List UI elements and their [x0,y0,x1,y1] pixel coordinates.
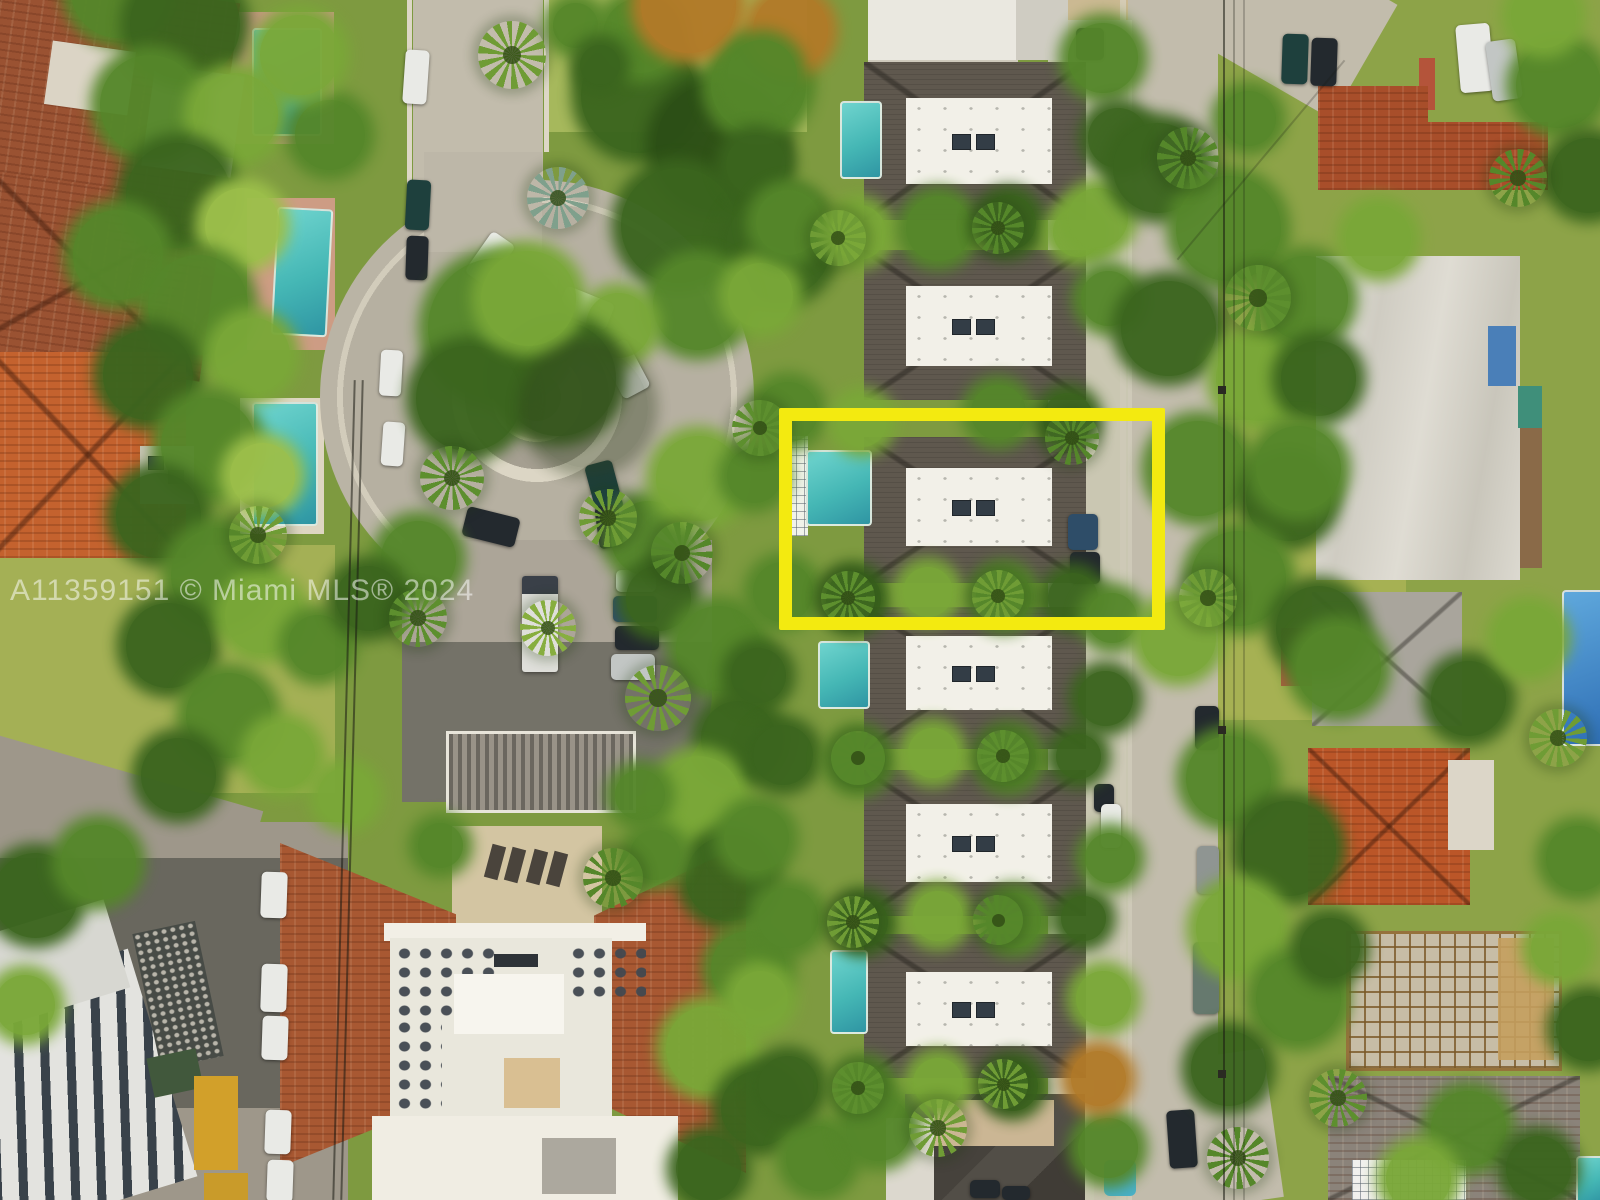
tree-canopy [1281,341,1356,416]
palm-center [1330,1090,1345,1105]
ac-unit [952,666,971,682]
palm-tree [583,848,643,908]
blue-tarp [1488,326,1516,386]
truck-cab [522,576,558,594]
palm-tree [909,1099,967,1157]
tree-canopy [753,725,813,785]
ac-cluster [568,944,646,1002]
tree-canopy [1068,188,1128,248]
car [1310,38,1338,87]
car [1166,1109,1198,1169]
car [1002,1186,1030,1200]
tree-canopy [528,348,648,468]
tree-canopy [288,615,348,675]
tree-canopy [1191,1031,1266,1106]
ac-unit [976,134,995,150]
palm-center [997,1078,1010,1091]
tree-canopy [906,196,971,261]
car [405,236,429,281]
palm-tree [478,21,546,89]
palm-tree [973,895,1023,945]
tree-canopy [908,728,958,778]
tree-canopy [295,100,365,170]
palm-center [674,545,690,561]
palm-center [1180,150,1196,166]
tree-canopy [1346,206,1411,271]
swimming-pool [830,950,868,1034]
swimming-pool [818,641,870,709]
tree-canopy [1121,281,1216,376]
tree-canopy [1085,833,1135,883]
palm-tree [579,489,637,547]
tree-canopy [758,1056,818,1116]
orange-roof-house [1308,748,1470,905]
tree-canopy [727,40,797,110]
tree-canopy [1431,1091,1506,1166]
tree-canopy [1221,91,1276,146]
tree-canopy [786,1126,851,1191]
car [264,1110,292,1155]
ac-unit [976,1002,995,1018]
tree-canopy [141,738,216,813]
wood-patch [504,1058,560,1108]
power-line [1223,0,1225,1200]
tree-canopy [230,443,295,508]
palm-tree [1529,709,1587,767]
tree-canopy [1186,736,1271,821]
palm-tree [527,167,589,229]
palm-tree [625,665,691,731]
palm-tree [810,210,866,266]
condo-lower-roof [372,1116,678,1200]
ac-unit [952,319,971,335]
tree-canopy [1068,23,1138,93]
tree-canopy [205,188,280,263]
tree-canopy [193,73,278,158]
tree-canopy [1496,606,1561,671]
tree-canopy [1056,734,1101,779]
palm-tree [978,1059,1028,1109]
car [261,1016,289,1061]
palm-center [250,527,265,542]
palm-center [996,749,1010,763]
car [1197,846,1219,894]
ac-unit [976,319,995,335]
palm-tree [827,896,879,948]
tree-canopy [1071,1051,1126,1106]
tree-canopy [1300,918,1360,978]
palm-center [649,689,666,706]
ac-unit [976,666,995,682]
tree-canopy [1531,921,1586,976]
tree-canopy [481,251,576,346]
palm-center [605,870,621,886]
palm-tree [520,600,576,656]
tree-canopy [580,45,620,85]
palm-tree [1157,127,1219,189]
tree-canopy [553,3,598,48]
north-road-sidewalk-east [544,0,549,152]
palm-center [1550,730,1565,745]
palm-tree [972,202,1024,254]
palm-center [503,46,521,64]
aerial-photo: A11359151 © Miami MLS® 2024 [0,0,1600,1200]
tree-canopy [100,55,200,155]
yellow-truck-cab [204,1173,248,1200]
tree-canopy [1516,43,1600,128]
tree-canopy [1296,626,1381,711]
green-tarp [1518,386,1542,428]
palm-center [410,610,425,625]
palm-center [991,221,1005,235]
tree-canopy [215,318,290,393]
watermark: A11359151 © Miami MLS® 2024 [10,574,474,608]
solar-panel [494,954,538,967]
car [402,49,430,105]
tree-canopy [1241,801,1336,896]
palm-tree [1179,569,1237,627]
utility-pole [1218,1070,1226,1078]
palm-center [1510,170,1525,185]
tree-canopy [1078,1118,1138,1178]
car [380,421,405,466]
tree-canopy [758,888,818,948]
tree-canopy [250,723,315,788]
highlight-box [779,408,1165,630]
palm-center [992,914,1005,927]
swimming-pool [840,101,882,179]
tree-canopy [726,135,786,195]
tree-canopy [1256,426,1341,511]
tree-canopy [1078,671,1133,726]
power-line [1233,0,1235,1200]
swimming-pool [1576,1156,1600,1200]
rooftop-patch [1448,760,1494,850]
palm-center [753,421,768,436]
tree-canopy [418,823,463,868]
palm-tree [832,1062,884,1114]
palm-tree [977,730,1029,782]
palm-center [851,751,865,765]
tree-canopy [676,1136,741,1200]
tree-canopy [1431,661,1506,736]
tree-canopy [260,15,340,95]
rooftop-pergola [446,731,636,813]
palm-center [930,1120,945,1135]
tree-canopy [731,648,786,703]
tree-canopy [1061,896,1106,941]
palm-center [600,510,615,525]
palm-center [541,621,556,636]
cul-de-sac-apron [424,152,542,252]
utility-pole [1218,726,1226,734]
palm-center [550,190,566,206]
tree-canopy [733,971,788,1026]
tree-canopy [1196,886,1281,971]
car [1281,34,1309,85]
tree-canopy [61,825,136,900]
tree-canopy [1506,1136,1571,1200]
car [405,179,432,230]
car [970,1180,1000,1198]
car [379,349,403,396]
utility-pole [1218,386,1226,394]
modern-flat-roof-building [868,0,1018,62]
palm-center [1200,590,1215,605]
palm-tree [1207,1127,1269,1189]
palm-tree [229,506,287,564]
tree-canopy [615,770,665,820]
tree-canopy [913,891,963,941]
palm-tree [1489,149,1547,207]
palm-tree [651,522,713,584]
ac-unit [148,456,164,470]
palm-tree [420,446,484,510]
palm-center [444,470,461,487]
tree-canopy [73,210,163,300]
modern-flat-roof-gray [1016,0,1068,60]
ac-unit [952,134,971,150]
car [260,964,288,1013]
car [266,1160,293,1200]
ac-unit [952,1002,971,1018]
swimming-pool [271,207,334,338]
antenna-equipment [542,1138,616,1194]
tree-canopy [1076,971,1131,1026]
yellow-truck [194,1076,238,1170]
tree-canopy [416,346,521,451]
tree-canopy [126,603,211,688]
palm-tree [1309,1069,1367,1127]
tree-canopy [728,263,793,328]
ac-unit [976,836,995,852]
palm-center [846,915,860,929]
palm-tree [831,731,885,785]
palm-center [851,1081,865,1095]
roof-structure [454,974,564,1034]
tree-canopy [727,448,782,503]
tree-canopy [724,806,789,871]
ac-unit [952,836,971,852]
palm-center [1249,289,1266,306]
palm-center [831,231,846,246]
car [260,872,288,919]
